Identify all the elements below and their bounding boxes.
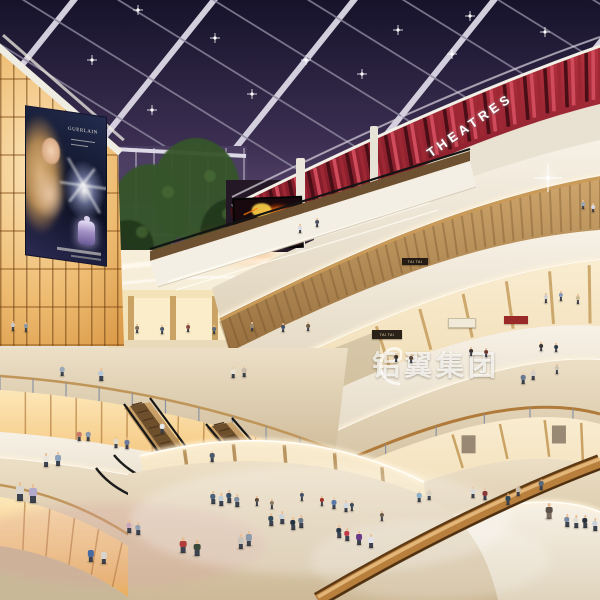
person-figure <box>331 497 336 509</box>
person-part <box>546 507 553 514</box>
person-part <box>575 302 581 306</box>
person-part <box>125 531 133 535</box>
person-part <box>553 350 559 354</box>
person-figure <box>29 484 37 503</box>
person-part <box>76 439 83 443</box>
person-part <box>558 299 564 303</box>
person-part <box>393 360 399 364</box>
store-sign-text: TAI TAI <box>380 333 394 337</box>
person-figure <box>246 531 252 546</box>
person-figure <box>124 437 129 449</box>
person-part <box>269 507 275 511</box>
watermark-logo-icon <box>372 344 402 386</box>
person-part <box>591 529 599 533</box>
billboard-ad: GUERLAIN <box>25 105 107 267</box>
person-part <box>159 332 165 336</box>
person-part <box>379 519 385 523</box>
person-figure <box>60 365 65 376</box>
store-sign-tai-tai: TAI TAI <box>372 330 402 339</box>
person-part <box>554 372 560 376</box>
person-part <box>29 488 37 496</box>
person-figure <box>505 493 510 505</box>
person-part <box>241 375 248 379</box>
person-figure <box>380 511 384 521</box>
perfume-bottle <box>78 220 95 246</box>
person-figure <box>135 324 139 333</box>
person-figure <box>350 501 354 511</box>
person-part <box>59 374 66 378</box>
person-figure <box>268 513 273 526</box>
billboard-brand-text: GUERLAIN <box>68 125 89 133</box>
store-signboard <box>504 316 528 324</box>
person-figure <box>482 488 487 500</box>
person-part <box>42 465 51 469</box>
person-figure <box>484 348 488 357</box>
person-part <box>289 528 297 532</box>
person-part <box>416 500 423 504</box>
person-figure <box>344 528 349 541</box>
person-part <box>180 541 187 548</box>
person-figure <box>417 491 422 502</box>
person-figure <box>591 203 595 212</box>
store-sign-text: TAI TAI <box>408 260 422 264</box>
person-figure <box>113 436 118 448</box>
person-figure <box>180 537 187 553</box>
person-figure <box>226 490 231 503</box>
person-figure <box>77 430 82 441</box>
person-part <box>196 540 198 544</box>
person-figure <box>573 515 578 528</box>
perfume-bottle-cap <box>84 216 90 223</box>
person-part <box>159 431 166 435</box>
person-figure <box>135 522 140 535</box>
person-part <box>112 446 120 450</box>
person-part <box>581 526 589 530</box>
person-part <box>543 301 549 305</box>
person-figure <box>581 200 585 209</box>
person-figure <box>234 494 239 507</box>
person-part <box>211 332 217 336</box>
person-part <box>194 544 201 551</box>
person-figure <box>555 364 559 374</box>
person-figure <box>160 422 165 433</box>
person-figure <box>343 500 348 512</box>
person-part <box>244 544 253 548</box>
person-figure <box>320 496 324 506</box>
person-figure <box>336 525 341 538</box>
person-part <box>217 504 225 508</box>
store-signboard <box>448 318 476 328</box>
person-part <box>278 522 286 526</box>
person-part <box>254 504 260 508</box>
person-figure <box>470 486 475 498</box>
person-figure <box>11 321 15 331</box>
person-part <box>10 329 16 333</box>
person-part <box>134 331 140 335</box>
person-part <box>97 379 105 383</box>
person-part <box>54 464 63 468</box>
person-part <box>178 551 188 555</box>
person-figure <box>55 452 61 466</box>
person-part <box>14 499 26 503</box>
person-part <box>544 517 554 521</box>
person-figure <box>592 518 597 531</box>
person-figure <box>88 547 94 562</box>
person-part <box>134 533 142 537</box>
person-figure <box>290 517 295 530</box>
billboard-caption <box>57 247 101 256</box>
person-figure <box>210 451 215 462</box>
person-part <box>515 494 522 498</box>
person-figure <box>554 343 558 352</box>
person-figure <box>24 322 28 332</box>
person-part <box>367 546 376 550</box>
person-figure <box>194 540 201 556</box>
person-part <box>99 562 108 566</box>
person-part <box>192 554 202 558</box>
person-figure <box>238 534 244 549</box>
person-part <box>468 354 474 358</box>
person-part <box>572 526 580 530</box>
person-part <box>267 524 275 528</box>
person-figure <box>356 531 362 545</box>
person-part <box>85 439 92 443</box>
person-part <box>520 382 527 386</box>
person-figure <box>394 353 398 362</box>
person-part <box>349 509 355 513</box>
person-part <box>580 207 586 211</box>
person-figure <box>101 549 107 564</box>
person-figure <box>98 368 103 381</box>
person-part <box>426 498 433 502</box>
person-figure <box>270 499 274 509</box>
person-part <box>280 330 286 334</box>
person-part <box>538 349 544 353</box>
person-figure <box>539 342 543 351</box>
person-part <box>355 543 364 547</box>
watermark: 铝翼集团 <box>372 344 500 384</box>
person-figure <box>546 503 553 519</box>
person-part <box>209 460 216 464</box>
person-figure <box>516 485 521 496</box>
person-part <box>16 486 24 494</box>
person-part <box>335 536 343 540</box>
person-figure <box>300 491 304 501</box>
person-part <box>182 537 184 541</box>
person-figure <box>315 218 319 227</box>
person-part <box>319 504 325 508</box>
person-figure <box>186 323 190 332</box>
person-part <box>481 498 489 502</box>
person-part <box>590 210 596 214</box>
person-figure <box>86 430 91 441</box>
person-figure <box>298 515 303 528</box>
person-part <box>230 376 237 380</box>
store-sign-tai-tai: TAI TAI <box>402 258 428 265</box>
person-part <box>86 560 95 564</box>
person-part <box>23 330 29 334</box>
person-part <box>27 501 39 505</box>
person-figure <box>218 493 223 506</box>
person-figure <box>409 354 413 363</box>
billboard-tagline <box>71 139 95 143</box>
person-part <box>343 539 351 543</box>
person-part <box>530 378 537 382</box>
person-figure <box>255 496 259 506</box>
person-part <box>123 447 131 451</box>
person-figure <box>306 322 310 331</box>
person-figure <box>126 520 131 533</box>
person-figure <box>427 489 432 500</box>
person-part <box>548 503 550 507</box>
person-figure <box>531 369 536 380</box>
person-part <box>297 526 305 530</box>
person-part <box>483 355 489 359</box>
person-figure <box>212 325 216 334</box>
person-figure <box>582 515 587 528</box>
person-figure <box>160 325 164 334</box>
person-figure <box>564 514 569 527</box>
person-figure <box>559 291 563 301</box>
person-part <box>469 496 477 500</box>
person-part <box>209 502 217 506</box>
person-figure <box>469 347 473 356</box>
person-figure <box>250 322 254 331</box>
person-figure <box>43 453 49 467</box>
person-figure <box>368 534 374 548</box>
person-part <box>305 329 311 333</box>
person-part <box>408 361 414 365</box>
person-figure <box>231 367 236 378</box>
person-part <box>297 231 303 235</box>
billboard-tagline <box>71 144 89 147</box>
person-part <box>233 505 241 509</box>
person-figure <box>539 479 544 490</box>
person-figure <box>281 323 285 332</box>
person-part <box>314 225 320 229</box>
person-part <box>504 503 512 507</box>
person-figure <box>544 293 548 303</box>
person-figure <box>242 366 247 377</box>
billboard-caption <box>71 255 101 261</box>
person-part <box>185 330 191 334</box>
person-part <box>563 525 571 529</box>
person-figure <box>298 224 302 233</box>
person-figure <box>521 373 526 384</box>
person-part <box>225 501 233 505</box>
person-figure <box>210 491 215 504</box>
person-part <box>330 507 338 511</box>
person-part <box>249 329 255 333</box>
person-figure <box>279 511 284 524</box>
mall-atrium-scene: GUERLAIN THEATRES TAI TAI TAI TAI 铝翼集团 <box>0 0 600 600</box>
person-part <box>538 488 545 492</box>
person-figure <box>16 482 24 501</box>
person-part <box>299 499 305 503</box>
person-figure <box>576 294 580 304</box>
